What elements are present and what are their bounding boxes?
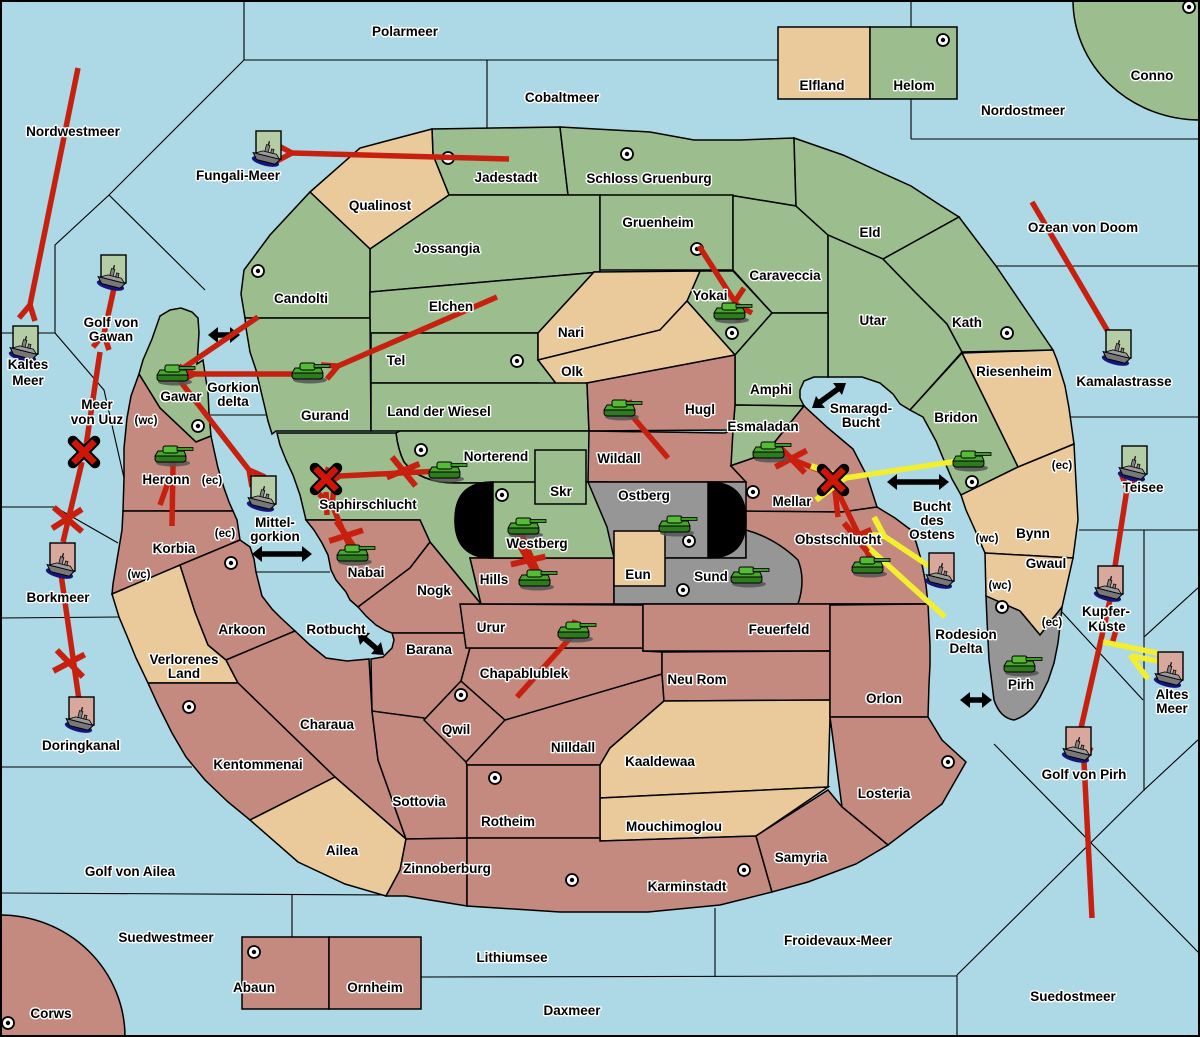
- svg-text:Eld: Eld: [859, 225, 880, 240]
- svg-text:Charaua: Charaua: [300, 717, 355, 732]
- svg-text:Gwaul: Gwaul: [1026, 556, 1067, 571]
- svg-text:(ec): (ec): [215, 528, 236, 540]
- svg-text:Bucht: Bucht: [842, 415, 881, 430]
- svg-text:Abaun: Abaun: [233, 980, 275, 995]
- svg-text:Rodesion: Rodesion: [935, 627, 997, 642]
- svg-text:Lithiumsee: Lithiumsee: [476, 950, 548, 965]
- svg-text:Nordostmeer: Nordostmeer: [981, 103, 1066, 118]
- svg-text:Orlon: Orlon: [866, 691, 902, 706]
- svg-text:(ec): (ec): [1052, 460, 1073, 472]
- svg-text:Golf von: Golf von: [84, 315, 139, 330]
- svg-text:Kath: Kath: [952, 315, 982, 330]
- svg-text:Land: Land: [168, 666, 200, 681]
- svg-text:Korbia: Korbia: [153, 541, 196, 556]
- svg-text:Mittel-: Mittel-: [255, 515, 295, 530]
- svg-text:Cobaltmeer: Cobaltmeer: [525, 90, 600, 105]
- svg-text:Sund: Sund: [694, 569, 728, 584]
- svg-text:Westberg: Westberg: [506, 536, 567, 551]
- svg-text:Gawar: Gawar: [160, 389, 202, 404]
- svg-text:Verlorenes: Verlorenes: [149, 652, 218, 667]
- svg-text:Amphi: Amphi: [750, 382, 792, 397]
- svg-text:Zinnoberburg: Zinnoberburg: [403, 861, 491, 876]
- svg-text:Suedostmeer: Suedostmeer: [1030, 989, 1116, 1004]
- svg-text:(wc): (wc): [135, 415, 158, 427]
- svg-text:Samyria: Samyria: [775, 850, 828, 865]
- svg-text:Polarmeer: Polarmeer: [372, 24, 439, 39]
- svg-text:Kaltes: Kaltes: [8, 357, 49, 372]
- svg-text:Norterend: Norterend: [464, 449, 529, 464]
- svg-text:delta: delta: [217, 394, 249, 409]
- svg-text:Land der Wiesel: Land der Wiesel: [387, 404, 490, 419]
- svg-text:Daxmeer: Daxmeer: [543, 1003, 601, 1018]
- svg-text:Hugl: Hugl: [685, 402, 715, 417]
- svg-text:Delta: Delta: [949, 641, 983, 656]
- svg-text:Meer: Meer: [1156, 701, 1188, 716]
- svg-text:Schloss Gruenburg: Schloss Gruenburg: [586, 171, 711, 186]
- svg-text:Nogk: Nogk: [417, 583, 451, 598]
- svg-text:Gruenheim: Gruenheim: [622, 215, 693, 230]
- svg-text:Corws: Corws: [30, 1006, 71, 1021]
- svg-text:(ec): (ec): [1042, 617, 1063, 629]
- svg-text:Qwil: Qwil: [442, 722, 471, 737]
- svg-text:Ozean von Doom: Ozean von Doom: [1028, 220, 1138, 235]
- svg-text:Nordwestmeer: Nordwestmeer: [26, 124, 121, 139]
- svg-text:Karminstadt: Karminstadt: [648, 879, 727, 894]
- svg-text:(wc): (wc): [989, 580, 1012, 592]
- svg-text:Chapablublek: Chapablublek: [480, 666, 569, 681]
- svg-text:Qualinost: Qualinost: [349, 198, 412, 213]
- svg-text:Elfland: Elfland: [799, 78, 844, 93]
- svg-text:Suedwestmeer: Suedwestmeer: [118, 930, 214, 945]
- svg-text:Gorkion: Gorkion: [207, 380, 259, 395]
- svg-text:Tel: Tel: [387, 353, 406, 368]
- svg-text:Candolti: Candolti: [274, 291, 328, 306]
- svg-text:Ostens: Ostens: [909, 527, 955, 542]
- svg-text:Mouchimoglou: Mouchimoglou: [626, 819, 722, 834]
- svg-text:Teisee: Teisee: [1122, 480, 1164, 495]
- svg-text:Pirh: Pirh: [1008, 677, 1034, 692]
- svg-text:Bynn: Bynn: [1016, 526, 1050, 541]
- svg-text:Skr: Skr: [550, 484, 573, 499]
- svg-text:Saphirschlucht: Saphirschlucht: [319, 497, 417, 512]
- svg-text:(wc): (wc): [976, 533, 999, 545]
- svg-text:Golf von Ailea: Golf von Ailea: [85, 864, 176, 879]
- svg-text:Küste: Küste: [1088, 619, 1126, 634]
- svg-text:Nabai: Nabai: [348, 565, 385, 580]
- svg-text:Gurand: Gurand: [301, 408, 349, 423]
- svg-text:Utar: Utar: [859, 313, 887, 328]
- svg-text:Kupfer-: Kupfer-: [1082, 604, 1130, 619]
- svg-text:Ostberg: Ostberg: [618, 488, 670, 503]
- svg-text:Urur: Urur: [477, 620, 506, 635]
- svg-text:Smaragd-: Smaragd-: [830, 401, 892, 416]
- svg-text:Meer: Meer: [12, 373, 44, 388]
- svg-text:Kentommenai: Kentommenai: [213, 757, 302, 772]
- svg-text:Yokai: Yokai: [692, 288, 727, 303]
- svg-text:Kamalastrasse: Kamalastrasse: [1076, 374, 1172, 389]
- svg-text:Gawan: Gawan: [89, 329, 133, 344]
- svg-text:Borkmeer: Borkmeer: [26, 590, 90, 605]
- svg-text:Helom: Helom: [893, 78, 934, 93]
- svg-text:Doringkanal: Doringkanal: [42, 738, 120, 753]
- svg-text:Neu Rom: Neu Rom: [667, 672, 726, 687]
- svg-text:Bridon: Bridon: [934, 410, 978, 425]
- svg-text:Nilldall: Nilldall: [551, 740, 595, 755]
- svg-text:Conno: Conno: [1131, 68, 1174, 83]
- svg-text:Kaaldewaa: Kaaldewaa: [625, 754, 695, 769]
- svg-text:Golf von Pirh: Golf von Pirh: [1042, 767, 1127, 782]
- svg-text:Nari: Nari: [558, 325, 584, 340]
- svg-text:(wc): (wc): [128, 569, 151, 581]
- svg-text:Losteria: Losteria: [858, 786, 911, 801]
- svg-text:Arkoon: Arkoon: [218, 622, 265, 637]
- svg-text:Froidevaux-Meer: Froidevaux-Meer: [784, 933, 893, 948]
- svg-text:Fungali-Meer: Fungali-Meer: [196, 168, 281, 183]
- svg-text:Hills: Hills: [480, 572, 509, 587]
- svg-text:Altes: Altes: [1155, 687, 1188, 702]
- svg-text:Mellar: Mellar: [772, 494, 812, 509]
- svg-text:(ec): (ec): [202, 475, 223, 487]
- svg-text:Barana: Barana: [406, 642, 452, 657]
- svg-text:gorkion: gorkion: [250, 529, 300, 544]
- svg-text:des: des: [920, 513, 943, 528]
- svg-text:Sottovia: Sottovia: [392, 794, 446, 809]
- svg-text:Bucht: Bucht: [913, 499, 952, 514]
- svg-text:Ornheim: Ornheim: [347, 980, 403, 995]
- svg-text:Feuerfeld: Feuerfeld: [749, 622, 810, 637]
- svg-text:Rotheim: Rotheim: [481, 814, 535, 829]
- svg-text:Jossangia: Jossangia: [414, 241, 481, 256]
- svg-text:Meer: Meer: [81, 397, 113, 412]
- svg-text:Elchen: Elchen: [429, 299, 473, 314]
- svg-text:Eun: Eun: [625, 567, 651, 582]
- svg-text:Esmaladan: Esmaladan: [727, 419, 798, 434]
- svg-text:Jadestadt: Jadestadt: [474, 170, 538, 185]
- svg-text:von Uuz: von Uuz: [71, 412, 124, 427]
- svg-text:Ailea: Ailea: [326, 843, 359, 858]
- svg-text:Olk: Olk: [561, 364, 583, 379]
- svg-text:Wildall: Wildall: [597, 451, 640, 466]
- svg-text:Caraveccia: Caraveccia: [749, 268, 821, 283]
- svg-text:Heronn: Heronn: [142, 472, 189, 487]
- svg-text:Riesenheim: Riesenheim: [976, 364, 1052, 379]
- svg-text:Obstschlucht: Obstschlucht: [795, 532, 882, 547]
- svg-text:Rotbucht: Rotbucht: [306, 622, 366, 637]
